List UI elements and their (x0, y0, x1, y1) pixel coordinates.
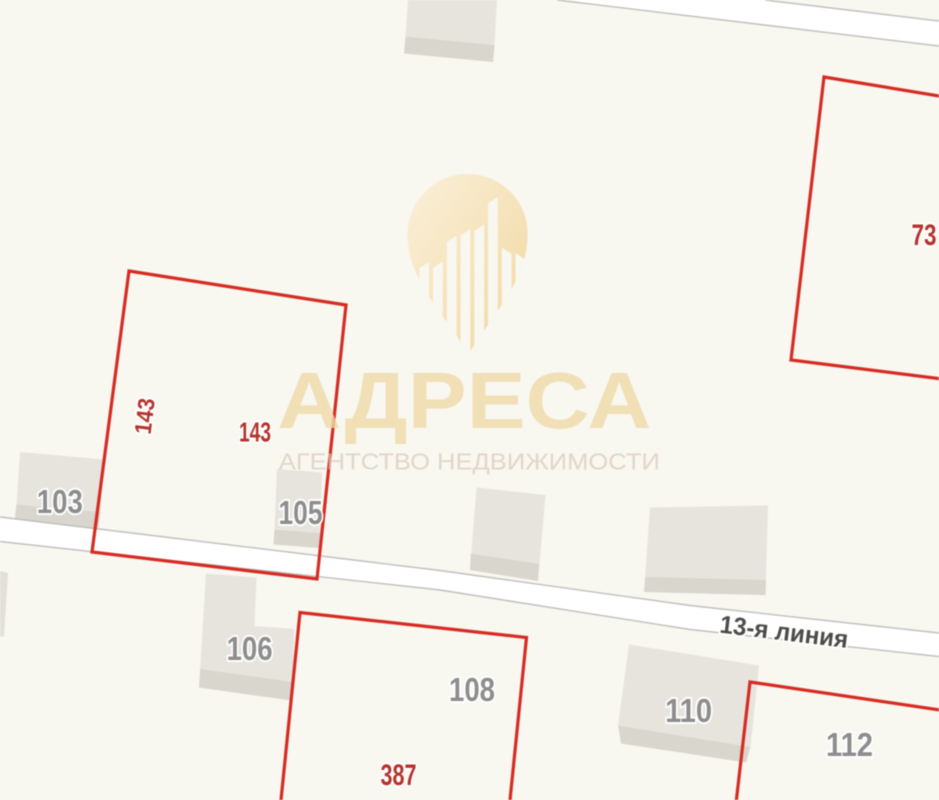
svg-text:73: 73 (912, 219, 937, 252)
svg-text:103: 103 (37, 483, 83, 520)
svg-text:АДРЕСА: АДРЕСА (277, 356, 651, 445)
svg-text:143: 143 (239, 417, 271, 448)
svg-text:387: 387 (381, 759, 417, 792)
svg-text:112: 112 (826, 726, 873, 763)
svg-text:110: 110 (665, 692, 712, 729)
svg-text:АГЕНТСТВО НЕДВИЖИМОСТИ: АГЕНТСТВО НЕДВИЖИМОСТИ (279, 449, 660, 475)
svg-text:105: 105 (279, 494, 323, 531)
svg-text:106: 106 (227, 630, 273, 667)
svg-text:108: 108 (449, 671, 495, 708)
svg-text:143: 143 (130, 397, 160, 436)
